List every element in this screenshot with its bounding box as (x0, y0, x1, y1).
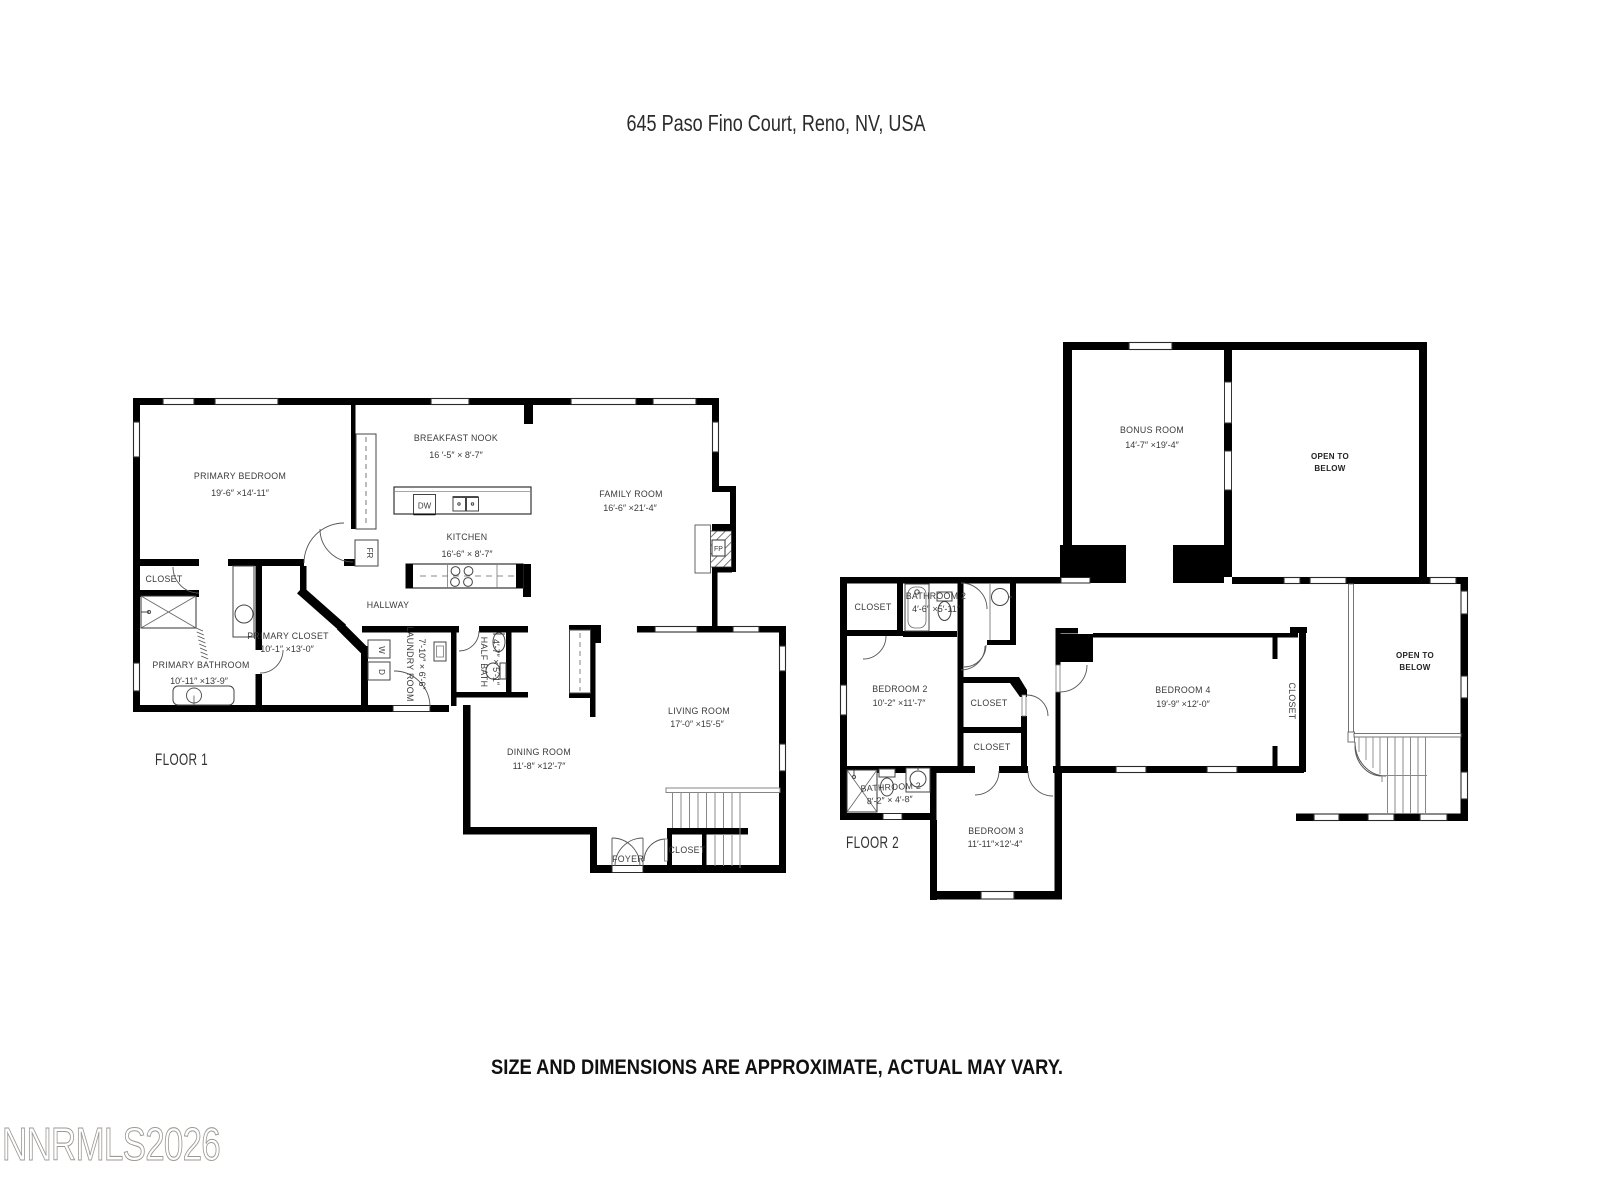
svg-text:CLOSET: CLOSET (146, 574, 183, 584)
svg-text:BELOW: BELOW (1399, 663, 1430, 672)
svg-text:10′-2″ ×11′-7″: 10′-2″ ×11′-7″ (873, 698, 927, 708)
svg-text:LIVING ROOM: LIVING ROOM (668, 706, 730, 716)
svg-text:11′-11″×12′-4″: 11′-11″×12′-4″ (968, 839, 1024, 849)
svg-text:BONUS ROOM: BONUS ROOM (1120, 425, 1184, 435)
svg-text:16 ′-5″ × 8′-7″: 16 ′-5″ × 8′-7″ (429, 450, 483, 460)
svg-text:14′-7″ ×19′-4″: 14′-7″ ×19′-4″ (1125, 440, 1179, 450)
svg-text:BEDROOM 2: BEDROOM 2 (872, 684, 928, 694)
svg-text:FR: FR (365, 548, 374, 559)
svg-text:BATHROOM 2: BATHROOM 2 (906, 591, 967, 601)
svg-text:FAMILY ROOM: FAMILY ROOM (599, 489, 663, 499)
svg-text:PRIMARY CLOSET: PRIMARY CLOSET (247, 631, 329, 641)
svg-text:OPEN TO: OPEN TO (1396, 651, 1434, 660)
svg-text:BELOW: BELOW (1314, 464, 1345, 473)
svg-text:FP: FP (714, 546, 723, 553)
svg-text:16′-6″ × 8′-7″: 16′-6″ × 8′-7″ (441, 549, 493, 559)
svg-text:DINING ROOM: DINING ROOM (507, 747, 571, 757)
svg-text:16′-6″ ×21′-4″: 16′-6″ ×21′-4″ (603, 503, 657, 513)
svg-text:W: W (377, 646, 386, 654)
svg-text:4′-6″ ×5′-11″: 4′-6″ ×5′-11″ (912, 604, 961, 614)
svg-text:11′-8″ ×12′-7″: 11′-8″ ×12′-7″ (513, 761, 567, 771)
svg-text:D: D (377, 669, 386, 675)
svg-text:10′-1″ ×13′-0″: 10′-1″ ×13′-0″ (260, 644, 314, 654)
svg-text:FLOOR 1: FLOOR 1 (155, 750, 208, 769)
svg-text:CLOSET: CLOSET (1287, 683, 1297, 720)
svg-text:OPEN TO: OPEN TO (1311, 452, 1349, 461)
svg-text:KITCHEN: KITCHEN (447, 532, 488, 542)
svg-text:CLOSET: CLOSET (669, 845, 706, 855)
svg-text:17′-0″ ×15′-5″: 17′-0″ ×15′-5″ (670, 719, 724, 729)
svg-text:DW: DW (418, 502, 432, 511)
svg-text:10′-11″ ×13′-9″: 10′-11″ ×13′-9″ (170, 676, 229, 686)
svg-text:PRIMARY BATHROOM: PRIMARY BATHROOM (152, 660, 249, 670)
svg-text:FLOOR 2: FLOOR 2 (846, 833, 899, 852)
svg-text:LAUNDRY ROOM: LAUNDRY ROOM (405, 626, 415, 701)
svg-text:CLOSET: CLOSET (855, 602, 892, 612)
svg-text:SIZE AND DIMENSIONS ARE APPROX: SIZE AND DIMENSIONS ARE APPROXIMATE, ACT… (491, 1055, 1063, 1079)
svg-text:4′-7″ × 5′-1″: 4′-7″ × 5′-1″ (491, 639, 501, 686)
svg-text:CLOSET: CLOSET (974, 742, 1011, 752)
svg-text:CLOSET: CLOSET (971, 698, 1008, 708)
svg-text:PRIMARY BEDROOM: PRIMARY BEDROOM (194, 471, 286, 481)
svg-text:HALLWAY: HALLWAY (367, 600, 410, 610)
svg-text:19′-9″ ×12′-0″: 19′-9″ ×12′-0″ (1156, 699, 1210, 709)
svg-text:7′-10″ × 6′-6″: 7′-10″ × 6′-6″ (417, 638, 427, 690)
svg-text:NNRMLS2026: NNRMLS2026 (2, 1118, 220, 1170)
svg-text:BREAKFAST NOOK: BREAKFAST NOOK (414, 433, 498, 443)
svg-text:FOYER: FOYER (612, 854, 644, 864)
svg-text:645 Paso Fino Court, Reno, NV,: 645 Paso Fino Court, Reno, NV, USA (627, 110, 927, 136)
svg-text:BEDROOM 3: BEDROOM 3 (968, 826, 1024, 836)
svg-text:BEDROOM 4: BEDROOM 4 (1155, 685, 1211, 695)
svg-text:19′-6″ ×14′-11″: 19′-6″ ×14′-11″ (211, 488, 270, 498)
svg-text:HALF BATH: HALF BATH (479, 637, 489, 687)
